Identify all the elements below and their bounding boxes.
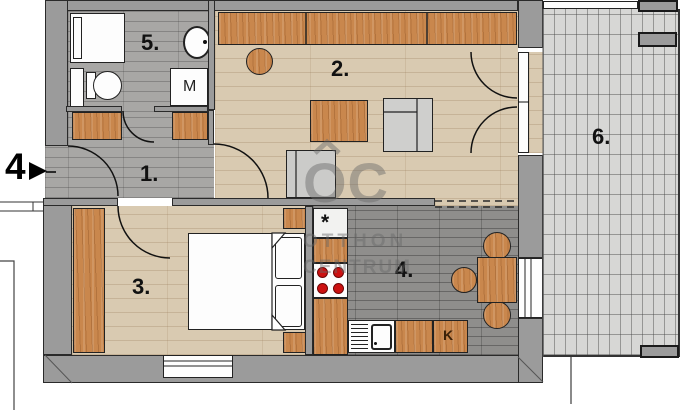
floor-plan: M * K	[0, 0, 687, 412]
dining-chair-top	[483, 232, 511, 260]
exterior-corner-line	[0, 261, 14, 410]
burner-3	[317, 283, 328, 294]
living-armchair	[383, 98, 433, 152]
sink-basin	[371, 324, 392, 350]
living-floor-patch	[435, 199, 518, 206]
basin-drain-dot	[374, 342, 377, 345]
wall-top	[45, 0, 518, 11]
sink-faucet-dot	[203, 40, 207, 44]
wall-left-upper	[45, 0, 68, 146]
wall-bathroom-right	[208, 0, 215, 110]
room-label-kitchen: 4.	[395, 259, 413, 281]
room-label-living: 2.	[331, 58, 349, 80]
kitchen-cabinet-mid	[313, 238, 348, 263]
star-mark: *	[321, 212, 329, 233]
pillow-bottom	[275, 285, 302, 327]
unit-arrow-icon	[29, 162, 47, 180]
terrace-railing	[543, 1, 638, 9]
entry-floor-patch	[45, 146, 68, 198]
fridge-label: K	[443, 328, 453, 342]
hall-cabinet-left	[72, 112, 122, 140]
terrace-door-leaves	[518, 52, 529, 153]
living-wardrobe	[218, 12, 517, 45]
living-round-table	[246, 48, 273, 75]
bathtub-ledge	[73, 17, 82, 59]
unit-number: 4	[5, 148, 26, 185]
terrace-pillar-right	[638, 32, 677, 47]
wall-bathroom-bottom-right	[154, 106, 208, 112]
room-label-bedroom: 3.	[132, 276, 150, 298]
nightstand-top	[283, 208, 307, 229]
bedroom-window	[163, 355, 233, 378]
wall-bathroom-bottom-left	[66, 106, 122, 112]
dining-table	[477, 257, 517, 303]
wall-bedroom-kitchen	[305, 206, 313, 355]
wall-right-middle	[518, 155, 543, 258]
terrace-pillar-bottom	[640, 345, 679, 358]
terrace-floor	[543, 9, 680, 357]
dining-chair-bottom	[483, 301, 511, 329]
terrace-pillar-top	[638, 0, 678, 12]
dining-chair-left	[451, 267, 477, 293]
room-label-hallway: 1.	[140, 163, 158, 185]
kitchen-window	[518, 258, 543, 318]
wall-living-kitchen	[172, 198, 435, 206]
living-sofa	[286, 150, 336, 198]
wall-hall-right	[208, 110, 214, 145]
burner-4	[333, 283, 344, 294]
burner-2	[333, 267, 344, 278]
room-label-terrace: 6.	[592, 126, 610, 148]
burner-1	[317, 267, 328, 278]
nightstand-bottom	[283, 332, 307, 353]
kitchen-counter-bottom	[395, 320, 433, 353]
kitchen-counter-white	[313, 208, 348, 238]
pillow-top	[275, 237, 302, 279]
wall-bedroom-top-left	[43, 198, 118, 206]
wall-right-top	[518, 0, 543, 48]
living-coffee-table	[310, 100, 368, 142]
washing-machine-label: M	[183, 79, 196, 95]
drainboard	[351, 324, 368, 349]
bedroom-wardrobe	[73, 208, 105, 353]
wall-left-lower	[43, 198, 72, 355]
room-label-bathroom: 5.	[141, 32, 159, 54]
door-threshold-patch	[529, 52, 543, 153]
toilet-bowl	[93, 71, 122, 100]
wall-bottom	[43, 355, 543, 383]
kitchen-counter-left	[313, 298, 348, 355]
wall-right-bottom	[518, 318, 543, 383]
hall-cabinet-right	[172, 112, 208, 140]
bathroom-shelf	[70, 68, 84, 107]
